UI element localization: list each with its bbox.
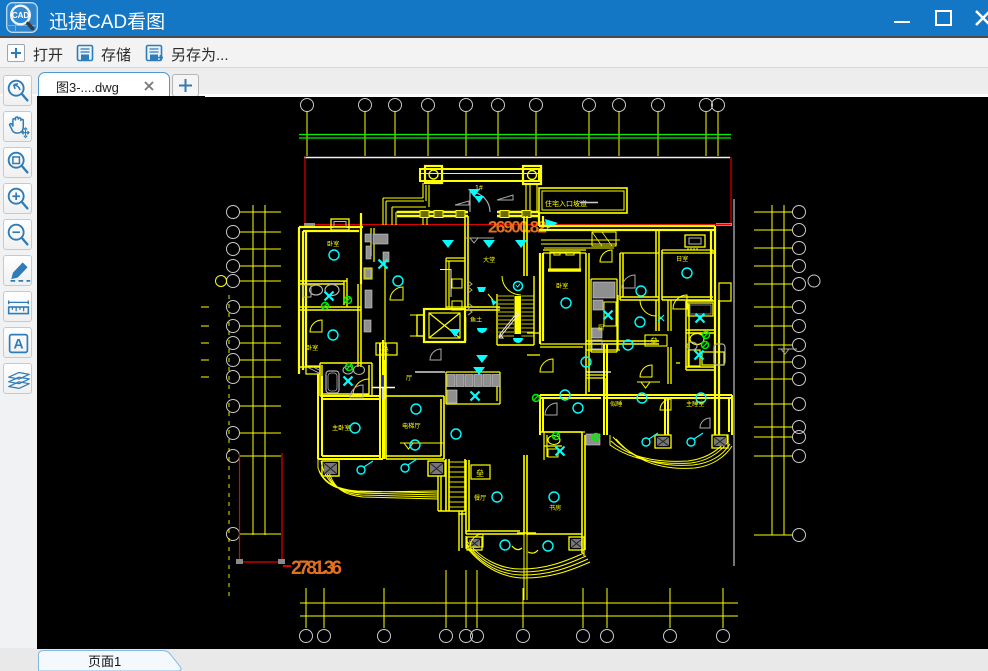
svg-text:厅: 厅 — [406, 375, 412, 382]
svg-text:电梯厅: 电梯厅 — [402, 422, 421, 430]
svg-text:主睡室: 主睡室 — [686, 400, 705, 408]
svg-text:A: A — [13, 336, 23, 352]
svg-text:大堂: 大堂 — [483, 256, 495, 264]
svg-text:日室: 日室 — [676, 255, 688, 263]
svg-text:厨: 厨 — [598, 325, 604, 332]
svg-text:2781.36: 2781.36 — [291, 558, 342, 579]
svg-text:垒: 垒 — [381, 345, 389, 355]
svg-text:鱼土: 鱼土 — [470, 316, 482, 324]
svg-text:垒: 垒 — [476, 468, 484, 478]
svg-text:CAD: CAD — [12, 11, 30, 20]
svg-text:书房: 书房 — [549, 504, 561, 512]
svg-text:垒: 垒 — [650, 336, 658, 346]
svg-text:住宅入口坡道: 住宅入口坡道 — [545, 199, 587, 208]
svg-text:餐厅: 餐厅 — [474, 494, 486, 502]
svg-text:卧室: 卧室 — [306, 344, 318, 352]
svg-text:主卧室: 主卧室 — [332, 424, 351, 432]
svg-text:卧室: 卧室 — [327, 240, 339, 248]
svg-text:卧室: 卧室 — [556, 282, 568, 290]
svg-text:似睡: 似睡 — [610, 400, 622, 408]
